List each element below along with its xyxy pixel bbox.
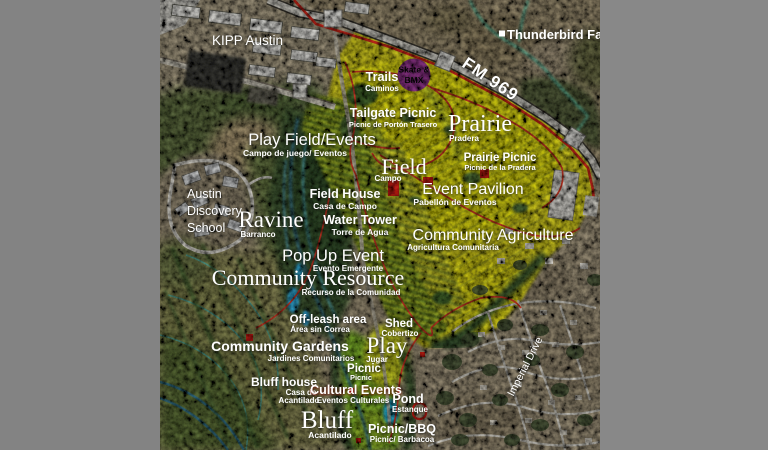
svg-text:Discovery: Discovery xyxy=(187,204,243,218)
svg-text:Picnic/ Barbacoa: Picnic/ Barbacoa xyxy=(370,435,435,444)
svg-text:Picnic: Picnic xyxy=(350,373,372,382)
svg-text:Picnic/BBQ: Picnic/BBQ xyxy=(368,422,436,436)
svg-text:Torre de Agua: Torre de Agua xyxy=(332,227,389,237)
svg-text:Community Agriculture: Community Agriculture xyxy=(413,227,574,244)
svg-text:Área sin Correa: Área sin Correa xyxy=(290,325,350,334)
svg-text:Cultural Events: Cultural Events xyxy=(310,383,402,397)
svg-text:Casa de Campo: Casa de Campo xyxy=(313,201,377,211)
svg-text:Bluff house: Bluff house xyxy=(251,375,317,389)
svg-text:Barranco: Barranco xyxy=(240,230,275,239)
svg-text:Jardines Comunitarios: Jardines Comunitarios xyxy=(268,354,355,363)
svg-text:Acantilado: Acantilado xyxy=(279,396,320,405)
svg-text:Skate &: Skate & xyxy=(398,65,429,75)
svg-text:Trails: Trails xyxy=(366,70,399,84)
svg-text:Pabellón de Eventos: Pabellón de Eventos xyxy=(413,197,496,207)
svg-text:Play Field/Events: Play Field/Events xyxy=(248,131,375,149)
svg-text:School: School xyxy=(187,221,225,235)
svg-text:Pond: Pond xyxy=(392,392,423,406)
svg-text:BMX: BMX xyxy=(405,75,424,85)
svg-text:Field House: Field House xyxy=(310,187,381,201)
svg-text:Event Pavilion: Event Pavilion xyxy=(422,181,523,198)
svg-text:Acantilado: Acantilado xyxy=(308,430,351,440)
svg-text:Austin: Austin xyxy=(187,187,222,201)
svg-text:Recurso de la Comunidad: Recurso de la Comunidad xyxy=(302,288,401,297)
svg-text:Pradera: Pradera xyxy=(449,134,479,143)
svg-text:Pop Up Event: Pop Up Event xyxy=(282,247,384,265)
svg-text:Picnic de Portón Trasero: Picnic de Portón Trasero xyxy=(349,120,438,129)
svg-text:Community Resource: Community Resource xyxy=(212,265,404,290)
svg-text:Tailgate Picnic: Tailgate Picnic xyxy=(350,106,437,120)
svg-text:KIPP Austin: KIPP Austin xyxy=(212,33,283,48)
svg-text:Campo: Campo xyxy=(374,174,401,183)
svg-text:Eventos Culturales: Eventos Culturales xyxy=(317,396,390,405)
svg-text:Picnic de la Pradera: Picnic de la Pradera xyxy=(464,163,536,172)
svg-text:Water Tower: Water Tower xyxy=(323,213,397,227)
svg-text:Estanque: Estanque xyxy=(392,405,429,414)
svg-text:Campo de juego/ Eventos: Campo de juego/ Eventos xyxy=(243,148,347,158)
svg-text:Ravine: Ravine xyxy=(238,207,303,232)
svg-text:Community Gardens: Community Gardens xyxy=(211,338,349,354)
svg-text:Agricultura Comunitaria: Agricultura Comunitaria xyxy=(407,243,499,252)
svg-text:Caminos: Caminos xyxy=(365,84,399,93)
